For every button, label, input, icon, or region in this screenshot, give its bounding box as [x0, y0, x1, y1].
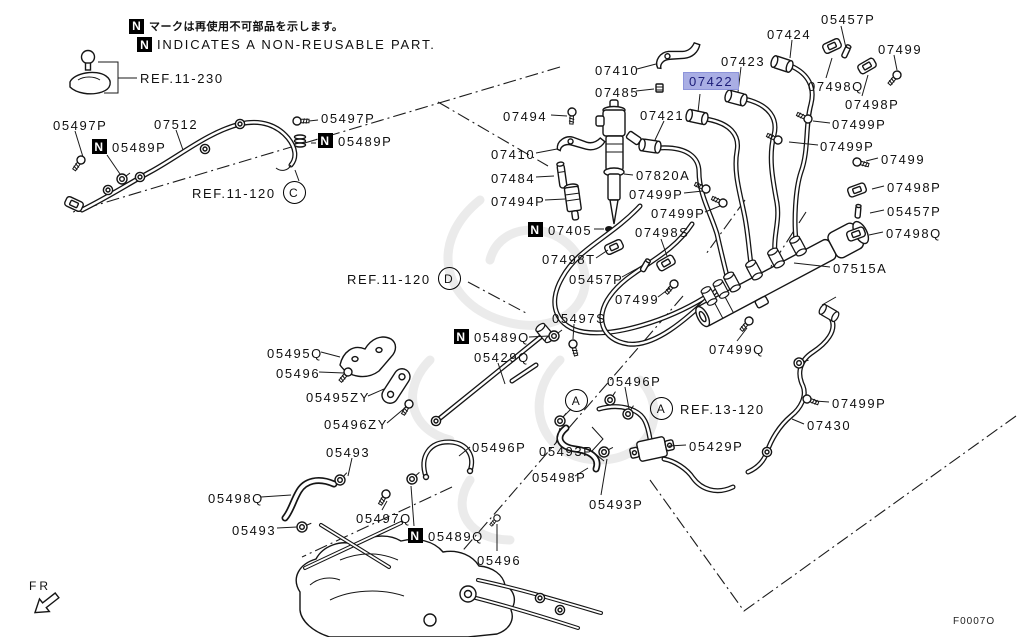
label-text: REF.11-120: [347, 272, 431, 286]
part-label-05457p[interactable]: 05457P: [821, 12, 875, 26]
part-label-05493[interactable]: 05493: [326, 445, 370, 459]
n-mark-icon: N: [528, 222, 543, 237]
label-text: 05498Q: [208, 491, 264, 505]
label-text: 05493: [326, 445, 370, 459]
ref-label-ref-11-120: REF.11-120D: [347, 267, 461, 290]
label-text: 07485: [595, 85, 639, 99]
label-text: 05495ZY: [306, 390, 370, 404]
part-label-07410[interactable]: 07410: [595, 63, 639, 77]
part-label-05496p[interactable]: 05496P: [472, 440, 526, 454]
part-label-07422[interactable]: 07422: [688, 74, 734, 88]
label-text: 07424: [767, 27, 811, 41]
label-text: 07494: [503, 109, 547, 123]
labels-layer: REF.11-23005497P07512N05489P05497PN05489…: [0, 0, 1024, 637]
label-text: 07410: [595, 63, 639, 77]
label-text: 07422: [683, 72, 739, 90]
label-text: 05493P: [589, 497, 643, 511]
label-text: 07499P: [832, 396, 886, 410]
part-label-07410[interactable]: 07410: [491, 147, 535, 161]
part-label-05493p[interactable]: 05493P: [539, 444, 593, 458]
label-text: 07499: [615, 292, 659, 306]
part-label-07499p[interactable]: 07499P: [832, 117, 886, 131]
label-text: 07515A: [833, 261, 887, 275]
part-label-07499[interactable]: 07499: [881, 152, 925, 166]
part-label-07499q[interactable]: 07499Q: [709, 342, 765, 356]
label-text: 07498P: [845, 97, 899, 111]
part-label-07498p[interactable]: 07498P: [887, 180, 941, 194]
label-text: 07484: [491, 171, 535, 185]
part-label-05498p[interactable]: 05498P: [532, 470, 586, 484]
part-label-07430[interactable]: 07430: [807, 418, 851, 432]
label-text: 07499: [881, 152, 925, 166]
label-text: 05489P: [112, 140, 166, 154]
label-text: 05457P: [821, 12, 875, 26]
part-label-07421[interactable]: 07421: [640, 108, 684, 122]
label-text: 07430: [807, 418, 851, 432]
part-label-07498s[interactable]: 07498S: [635, 225, 689, 239]
label-text: 05429Q: [474, 350, 530, 364]
part-label-05496p[interactable]: 05496P: [607, 374, 661, 388]
part-label-05489q[interactable]: N05489Q: [454, 329, 530, 344]
view-marker-a: A: [565, 389, 595, 412]
label-text: 05496: [276, 366, 320, 380]
label-text: 05457P: [569, 272, 623, 286]
part-label-05495q[interactable]: 05495Q: [267, 346, 323, 360]
n-mark-icon: N: [454, 329, 469, 344]
label-text: 07498T: [542, 252, 596, 266]
part-label-05429q[interactable]: 05429Q: [474, 350, 530, 364]
part-label-05496[interactable]: 05496: [276, 366, 320, 380]
part-label-05496[interactable]: 05496: [477, 553, 521, 567]
circle-marker-a: A: [650, 397, 673, 420]
label-text: 07498P: [887, 180, 941, 194]
part-label-05489p[interactable]: N05489P: [92, 139, 166, 154]
part-label-07485[interactable]: 07485: [595, 85, 639, 99]
label-text: 07512: [154, 117, 198, 131]
n-mark-icon: N: [318, 133, 333, 148]
label-text: REF.13-120: [680, 402, 765, 416]
part-label-07494p[interactable]: 07494P: [491, 194, 545, 208]
n-mark-icon: N: [408, 528, 423, 543]
part-label-05457p[interactable]: 05457P: [569, 272, 623, 286]
label-text: 05493P: [539, 444, 593, 458]
part-label-07498q[interactable]: 07498Q: [808, 79, 864, 93]
n-mark-icon: N: [92, 139, 107, 154]
part-label-07820a[interactable]: 07820A: [636, 168, 690, 182]
part-label-07499[interactable]: 07499: [615, 292, 659, 306]
part-label-05497s[interactable]: 05497S: [552, 311, 606, 325]
part-label-05497p[interactable]: 05497P: [321, 111, 375, 125]
part-label-07512[interactable]: 07512: [154, 117, 198, 131]
label-text: 07405: [548, 223, 592, 237]
label-text: REF.11-230: [140, 71, 224, 85]
circle-marker-d: D: [438, 267, 461, 290]
label-text: 05496ZY: [324, 417, 388, 431]
label-text: 07499P: [832, 117, 886, 131]
parts-diagram-page: .ln{stroke:#151515;stroke-width:1.4;fill…: [0, 0, 1024, 637]
label-text: REF.11-120: [192, 186, 276, 200]
part-label-05493[interactable]: 05493: [232, 523, 276, 537]
part-label-05497q[interactable]: 05497Q: [356, 511, 412, 525]
label-text: 05429P: [689, 439, 743, 453]
label-text: 05497P: [53, 118, 107, 132]
label-text: 05457P: [887, 204, 941, 218]
part-label-07498p[interactable]: 07498P: [845, 97, 899, 111]
ref-label-ref-11-230: REF.11-230: [140, 71, 224, 85]
part-label-07499[interactable]: 07499: [878, 42, 922, 56]
part-label-07499p[interactable]: 07499P: [629, 187, 683, 201]
label-text: 05496P: [607, 374, 661, 388]
label-text: 05489Q: [474, 330, 530, 344]
part-label-07423[interactable]: 07423: [721, 54, 765, 68]
label-text: 07498S: [635, 225, 689, 239]
part-label-05457p[interactable]: 05457P: [887, 204, 941, 218]
label-text: 07421: [640, 108, 684, 122]
label-text: 05489P: [338, 134, 392, 148]
part-label-07405[interactable]: N07405: [528, 222, 592, 237]
label-text: 07499P: [651, 206, 705, 220]
part-label-05429p[interactable]: 05429P: [689, 439, 743, 453]
part-label-05495zy[interactable]: 05495ZY: [306, 390, 370, 404]
label-text: 07499Q: [709, 342, 765, 356]
label-text: 07494P: [491, 194, 545, 208]
label-text: 05496: [477, 553, 521, 567]
part-label-07498q[interactable]: 07498Q: [886, 226, 942, 240]
label-text: 05497Q: [356, 511, 412, 525]
ref-label-ref-13-120: AREF.13-120: [650, 397, 765, 420]
label-text: 05493: [232, 523, 276, 537]
label-text: 07820A: [636, 168, 690, 182]
part-label-07494[interactable]: 07494: [503, 109, 547, 123]
label-text: 05489Q: [428, 529, 484, 543]
part-label-05493p[interactable]: 05493P: [589, 497, 643, 511]
part-label-07499p[interactable]: 07499P: [651, 206, 705, 220]
label-text: 05495Q: [267, 346, 323, 360]
part-label-07498t[interactable]: 07498T: [542, 252, 596, 266]
label-text: 05496P: [472, 440, 526, 454]
label-text: 05497S: [552, 311, 606, 325]
part-label-05497p[interactable]: 05497P: [53, 118, 107, 132]
part-label-07499p[interactable]: 07499P: [832, 396, 886, 410]
label-text: 07498Q: [808, 79, 864, 93]
circle-marker-a: A: [565, 389, 588, 412]
label-text: 05497P: [321, 111, 375, 125]
part-label-05489p[interactable]: N05489P: [318, 133, 392, 148]
label-text: 07499P: [629, 187, 683, 201]
part-label-07515a[interactable]: 07515A: [833, 261, 887, 275]
part-label-07499p[interactable]: 07499P: [820, 139, 874, 153]
ref-label-ref-11-120: REF.11-120C: [192, 181, 306, 204]
label-text: 07499P: [820, 139, 874, 153]
part-label-05496zy[interactable]: 05496ZY: [324, 417, 388, 431]
part-label-05498q[interactable]: 05498Q: [208, 491, 264, 505]
label-text: 07498Q: [886, 226, 942, 240]
label-text: 05498P: [532, 470, 586, 484]
part-label-05489q[interactable]: N05489Q: [408, 528, 484, 543]
circle-marker-c: C: [283, 181, 306, 204]
label-text: 07410: [491, 147, 535, 161]
label-text: 07499: [878, 42, 922, 56]
label-text: 07423: [721, 54, 765, 68]
part-label-07484[interactable]: 07484: [491, 171, 535, 185]
part-label-07424[interactable]: 07424: [767, 27, 811, 41]
